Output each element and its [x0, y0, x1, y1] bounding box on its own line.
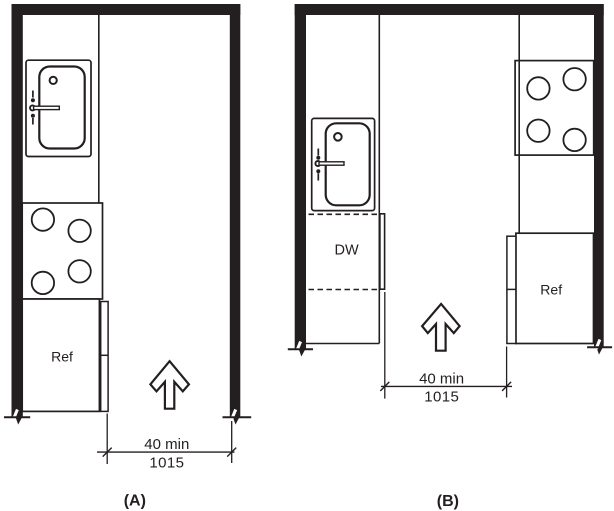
svg-text:1015: 1015	[149, 454, 184, 471]
svg-text:DW: DW	[335, 243, 359, 259]
svg-text:(A): (A)	[124, 493, 146, 510]
svg-text:1015: 1015	[424, 388, 459, 405]
svg-text:Ref: Ref	[51, 349, 73, 365]
svg-text:40 min: 40 min	[419, 370, 464, 387]
svg-text:(B): (B)	[437, 493, 459, 510]
svg-text:40 min: 40 min	[144, 436, 189, 453]
svg-text:Ref: Ref	[540, 281, 562, 297]
